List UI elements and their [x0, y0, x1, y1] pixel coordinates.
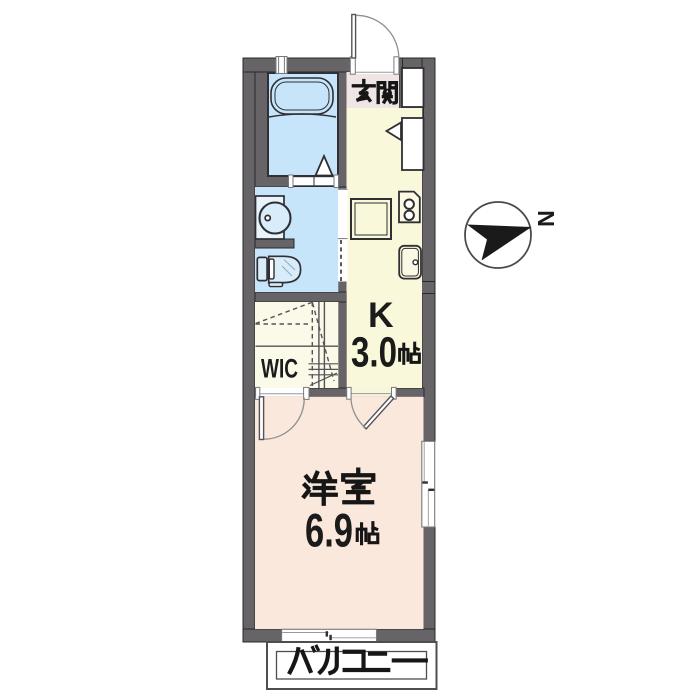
- svg-text:N: N: [533, 210, 559, 227]
- svg-text:3.0: 3.0: [351, 329, 397, 377]
- svg-text:6.9: 6.9: [305, 505, 353, 558]
- svg-text:WIC: WIC: [261, 354, 298, 384]
